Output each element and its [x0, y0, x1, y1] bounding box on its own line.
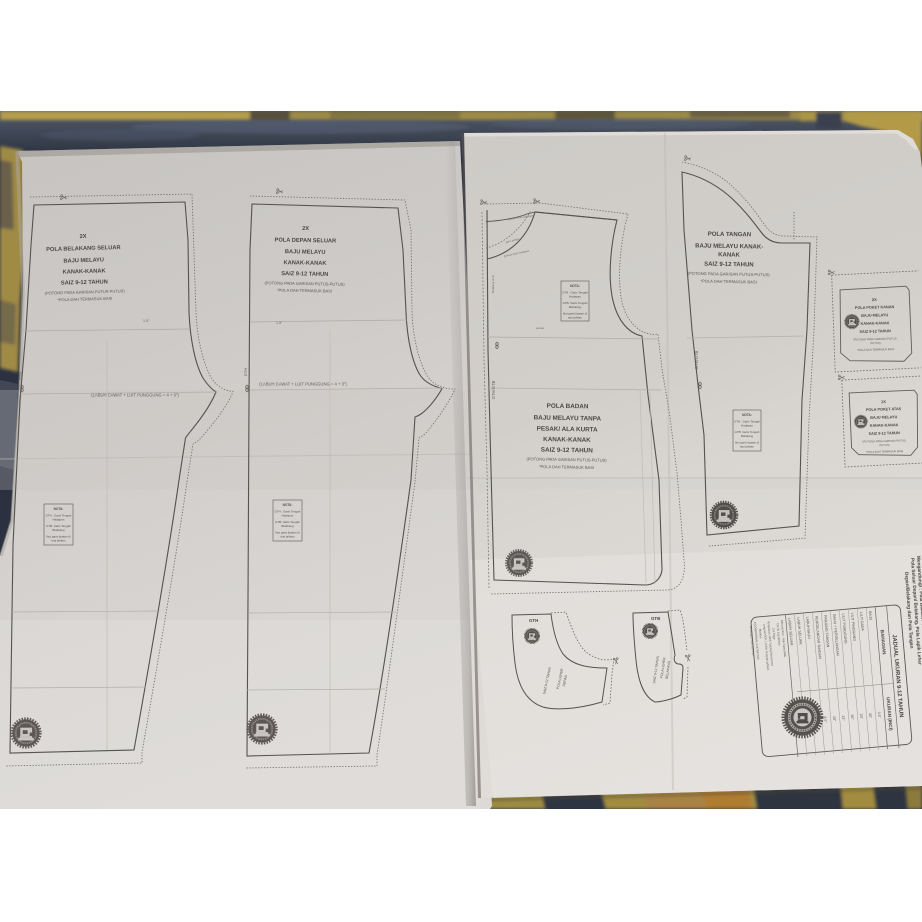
svg-text:(LABUH CAWAT + LUIT PUNGGUNG =: (LABUH CAWAT + LUIT PUNGGUNG = 4 + 3"): [259, 382, 347, 387]
svg-text:GTH/GTB: GTH/GTB: [694, 350, 699, 369]
svg-text:Hadapan: Hadapan: [569, 295, 581, 299]
svg-text:NOTA:: NOTA:: [570, 284, 580, 288]
svg-text:POLA TANGAN: POLA TANGAN: [708, 232, 751, 239]
svg-text:PUTUS): PUTUS): [879, 443, 889, 447]
svg-text:BAJU MELAYU: BAJU MELAYU: [285, 249, 326, 256]
svg-text:tepi jahitan: tepi jahitan: [740, 445, 754, 449]
svg-text:SAIZ 9-12 TAHUN: SAIZ 9-12 TAHUN: [859, 329, 891, 334]
svg-text:BAJU: BAJU: [868, 611, 873, 621]
svg-text:Hadapan: Hadapan: [741, 424, 753, 428]
svg-text:*POLA DAH TERMASUK BASI: *POLA DAH TERMASUK BASI: [700, 279, 756, 285]
svg-text:NOTA:: NOTA:: [283, 503, 293, 507]
svg-text:KANAK-KANAK: KANAK-KANAK: [543, 436, 591, 444]
svg-text:SAIZ 9-12 TAHUN: SAIZ 9-12 TAHUN: [281, 271, 328, 278]
svg-text:GTH/GTB: GTH/GTB: [491, 380, 496, 399]
svg-text:KANAK: KANAK: [718, 252, 740, 258]
svg-text:SAIZ 9-12 TAHUN: SAIZ 9-12 TAHUN: [868, 431, 900, 436]
svg-text:1X: 1X: [881, 399, 886, 404]
svg-text:2X: 2X: [80, 234, 87, 240]
svg-text:2X: 2X: [302, 226, 309, 232]
svg-text:Hadapan: Hadapan: [53, 518, 65, 522]
svg-text:GTH: GTH: [243, 368, 248, 377]
svg-text:*POLA DAH TERMASUK BASI: *POLA DAH TERMASUK BASI: [277, 288, 332, 294]
svg-text:PESAK/ ALA KURTA: PESAK/ ALA KURTA: [537, 425, 599, 433]
svg-text:Hadapan: Hadapan: [282, 514, 294, 518]
svg-text:KANAK-KANAK: KANAK-KANAK: [870, 423, 899, 428]
svg-text:3.5": 3.5": [877, 711, 882, 718]
svg-text:*POLA DAH TERMASUK BASI: *POLA DAH TERMASUK BASI: [539, 464, 594, 470]
svg-text:Belakang: Belakang: [741, 434, 753, 438]
svg-text:(LABUH CAWAT + LUIT PUNGGUNG =: (LABUH CAWAT + LUIT PUNGGUNG = 4 + 3"): [91, 393, 179, 398]
svg-text:NOTA:: NOTA:: [742, 413, 752, 417]
svg-text:Belakang: Belakang: [569, 305, 581, 309]
svg-text:Belakang: Belakang: [281, 524, 293, 528]
svg-text:BAJU MELAYU: BAJU MELAYU: [870, 415, 897, 420]
svg-text:BAJU MELAYU: BAJU MELAYU: [63, 257, 104, 264]
svg-text:KANAK-KANAK: KANAK-KANAK: [861, 321, 890, 326]
svg-text:BAJU MELAYU: BAJU MELAYU: [861, 313, 888, 318]
svg-text:SAIZ 9-12 TAHUN: SAIZ 9-12 TAHUN: [541, 447, 594, 455]
svg-text:tepi jahitan: tepi jahitan: [568, 316, 582, 320]
svg-text:KANAK-KANAK: KANAK-KANAK: [283, 260, 327, 267]
svg-text:1.5": 1.5": [276, 321, 283, 325]
svg-text:BAJU MELAYU TANPA: BAJU MELAYU TANPA: [534, 414, 602, 422]
svg-text:4.5": 4.5": [823, 716, 828, 723]
svg-text:tepi jahitan: tepi jahitan: [281, 535, 295, 539]
svg-text:PUTUS): PUTUS): [870, 341, 880, 345]
svg-text:pesak: pesak: [536, 326, 545, 330]
svg-text:Belakang: Belakang: [52, 528, 64, 532]
svg-text:KANAK-KANAK: KANAK-KANAK: [62, 268, 106, 275]
svg-text:POLA DEPAN SELUAR: POLA DEPAN SELUAR: [275, 237, 337, 244]
svg-text:tepi jahitan: tepi jahitan: [52, 539, 66, 543]
svg-text:GTH: GTH: [18, 372, 23, 381]
svg-text:2X: 2X: [872, 297, 877, 302]
svg-text:Belakang leher: Belakang leher: [491, 275, 495, 294]
svg-text:SAIZ 9-12 TAHUN: SAIZ 9-12 TAHUN: [704, 262, 754, 269]
svg-text:NOTA:: NOTA:: [54, 507, 64, 511]
svg-text:BAJU MELAYU KANAK-: BAJU MELAYU KANAK-: [695, 243, 763, 250]
svg-text:1.5": 1.5": [143, 319, 150, 323]
svg-text:GTH: GTH: [529, 618, 538, 623]
svg-text:POLA BADAN: POLA BADAN: [547, 403, 589, 411]
svg-text:GTB: GTB: [651, 616, 660, 621]
